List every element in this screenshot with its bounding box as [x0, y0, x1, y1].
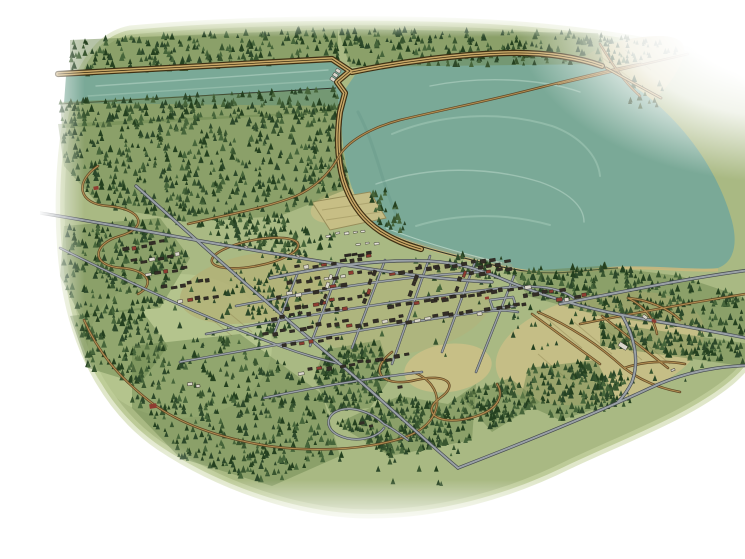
car — [296, 255, 300, 257]
farm-building — [187, 382, 192, 386]
car — [244, 246, 248, 248]
map-canvas: Illustrated bird's-eye map of a lakeside… — [40, 16, 745, 543]
farm-building — [196, 384, 200, 387]
illustrated-map: Illustrated bird's-eye map of a lakeside… — [40, 16, 745, 543]
